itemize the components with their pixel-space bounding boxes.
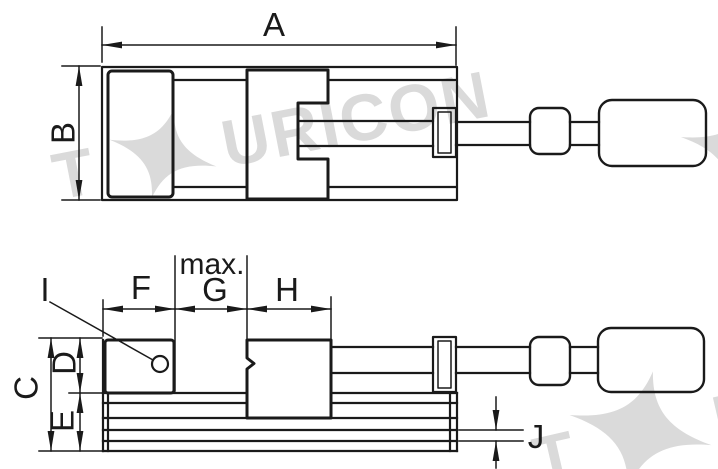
- label-b: B: [45, 122, 82, 144]
- technical-drawing-vise: T URICON T URICON: [0, 0, 718, 469]
- label-h: H: [275, 271, 299, 308]
- label-d: D: [46, 351, 83, 375]
- label-i: I: [40, 271, 49, 308]
- label-e: E: [44, 410, 81, 432]
- label-g: G: [202, 271, 228, 308]
- label-c: C: [8, 376, 45, 400]
- label-a: A: [263, 6, 285, 43]
- label-j: J: [528, 418, 545, 455]
- label-f: F: [131, 269, 151, 306]
